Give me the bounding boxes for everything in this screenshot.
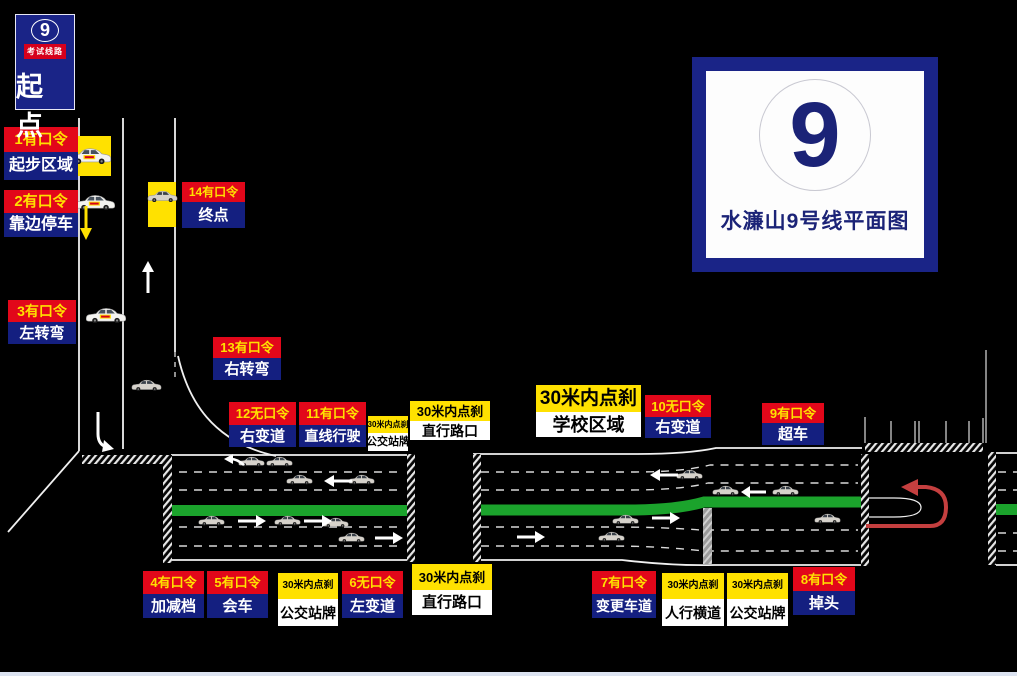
map-sign-line-number: 9 (759, 79, 871, 191)
arrow-right-icon (238, 515, 266, 527)
brake-bus-stop-bottom2-action: 公交站牌 (727, 599, 788, 626)
arrow-right-icon (375, 532, 403, 544)
car-icon (132, 380, 161, 391)
checkpoint-4: 4有口令 加减档 (143, 571, 204, 618)
exam-car-icon (75, 195, 114, 210)
checkpoint-7: 7有口令 变更车道 (592, 571, 656, 618)
start-sign: 9 考试线路 起点 (15, 14, 75, 110)
checkpoint-3-action: 左转弯 (8, 322, 76, 344)
brake-bus-stop-bottom1: 30米内点刹 公交站牌 (278, 573, 338, 626)
checkpoint-6-action: 左变道 (342, 594, 403, 618)
car-icon (199, 516, 224, 526)
car-icon (339, 533, 364, 543)
map-sign-panel: 9 水濂山9号线平面图 (706, 71, 924, 258)
checkpoint-11-code: 11有口令 (299, 402, 366, 425)
brake-pedestrian-cross-action: 人行横道 (662, 599, 724, 626)
brake-bus-stop-mid-action: 公交站牌 (368, 433, 408, 451)
checkpoint-6-code: 6无口令 (342, 571, 403, 594)
checkpoint-14: 14有口令 终点 (182, 182, 245, 228)
checkpoint-1-action: 起步区域 (4, 152, 78, 180)
brake-bus-stop-bottom1-action: 公交站牌 (278, 599, 338, 626)
car-icon (275, 516, 300, 526)
checkpoint-10-action: 右变道 (645, 417, 711, 438)
window-edge-strip (0, 672, 1017, 676)
start-sign-line-number: 9 (31, 19, 59, 42)
checkpoint-10: 10无口令 右变道 (645, 395, 711, 438)
checkpoint-2-action: 靠边停车 (4, 213, 78, 237)
checkpoint-3: 3有口令 左转弯 (8, 300, 76, 344)
car-icon (599, 532, 624, 542)
checkpoint-9: 9有口令 超车 (762, 403, 824, 445)
main-road-segment-b (473, 448, 862, 565)
start-sign-route-type: 考试线路 (24, 44, 66, 59)
car-icon (815, 514, 840, 524)
brake-straight-cross-bottom-code: 30米内点刹 (412, 564, 492, 590)
checkpoint-12: 12无口令 右变道 (229, 402, 296, 447)
checkpoint-5-code: 5有口令 (207, 571, 268, 594)
car-icon (267, 457, 292, 467)
car-icon (677, 470, 702, 480)
median-tip-outline (869, 498, 921, 517)
checkpoint-11: 11有口令 直线行驶 (299, 402, 366, 447)
exam-car-icon (86, 308, 125, 323)
checkpoint-6: 6无口令 左变道 (342, 571, 403, 618)
checkpoint-4-code: 4有口令 (143, 571, 204, 594)
checkpoint-12-code: 12无口令 (229, 402, 296, 425)
arrow-left-icon (741, 486, 766, 498)
brake-school-zone-code: 30米内点刹 (536, 385, 641, 412)
median-green (171, 505, 407, 516)
brake-school-zone: 30米内点刹 学校区域 (536, 385, 641, 437)
checkpoint-3-code: 3有口令 (8, 300, 76, 322)
checkpoint-10-code: 10无口令 (645, 395, 711, 417)
median-green (996, 504, 1017, 515)
arrow-left-icon (324, 475, 352, 487)
arrow-up-icon (142, 261, 154, 293)
checkpoint-7-code: 7有口令 (592, 571, 656, 594)
checkpoint-5: 5有口令 会车 (207, 571, 268, 618)
pedestrian-crossing-strip (703, 508, 712, 564)
brake-bus-stop-mid-code: 30米内点刹 (368, 416, 408, 433)
checkpoint-14-action: 终点 (182, 202, 245, 228)
brake-school-zone-action: 学校区域 (536, 412, 641, 437)
car-icon (287, 475, 312, 485)
checkpoint-13-action: 右转弯 (213, 358, 281, 380)
checkpoint-7-action: 变更车道 (592, 594, 656, 618)
checkpoint-12-action: 右变道 (229, 425, 296, 447)
car-icon (349, 475, 374, 485)
arrow-right-icon (517, 531, 545, 543)
checkpoint-13-code: 13有口令 (213, 337, 281, 358)
checkpoint-13: 13有口令 右转弯 (213, 337, 281, 380)
arrow-turn-icon (98, 412, 114, 452)
brake-straight-cross-bottom-action: 直行路口 (412, 590, 492, 615)
finish-zone-box (148, 182, 176, 227)
brake-pedestrian-cross: 30米内点刹 人行横道 (662, 573, 724, 626)
brake-straight-cross-top-action: 直行路口 (410, 421, 490, 440)
car-icon (773, 486, 798, 496)
map-sign-title: 水濂山9号线平面图 (721, 205, 910, 235)
start-sign-title: 起点 (16, 65, 74, 143)
route-map-canvas: 9 考试线路 起点 9 水濂山9号线平面图 1有口令 起步区域 2有口令 靠边停… (0, 0, 1017, 676)
checkpoint-2: 2有口令 靠边停车 (4, 190, 78, 237)
checkpoint-9-action: 超车 (762, 423, 824, 445)
car-icon (613, 515, 638, 525)
arrow-down-yellow-icon (80, 206, 92, 240)
checkpoint-2-code: 2有口令 (4, 190, 78, 213)
u-turn-arrow (866, 479, 946, 526)
checkpoint-8-action: 掉头 (793, 591, 855, 615)
brake-bus-stop-bottom2-code: 30米内点刹 (727, 573, 788, 599)
brake-straight-cross-top-code: 30米内点刹 (410, 401, 490, 421)
brake-straight-cross-bottom: 30米内点刹 直行路口 (412, 564, 492, 615)
brake-bus-stop-bottom2: 30米内点刹 公交站牌 (727, 573, 788, 626)
car-icon (713, 486, 738, 496)
brake-bus-stop-mid: 30米内点刹 公交站牌 (368, 416, 408, 451)
checkpoint-11-action: 直线行驶 (299, 425, 366, 447)
median-green (481, 502, 861, 510)
brake-straight-cross-top: 30米内点刹 直行路口 (410, 401, 490, 440)
main-road-segment-a (171, 455, 407, 560)
checkpoint-4-action: 加减档 (143, 594, 204, 618)
checkpoint-9-code: 9有口令 (762, 403, 824, 423)
checkpoint-8: 8有口令 掉头 (793, 567, 855, 615)
brake-pedestrian-cross-code: 30米内点刹 (662, 573, 724, 599)
map-sign: 9 水濂山9号线平面图 (692, 57, 938, 272)
checkpoint-14-code: 14有口令 (182, 182, 245, 202)
checkpoint-5-action: 会车 (207, 594, 268, 618)
brake-bus-stop-bottom1-code: 30米内点刹 (278, 573, 338, 599)
checkpoint-8-code: 8有口令 (793, 567, 855, 591)
